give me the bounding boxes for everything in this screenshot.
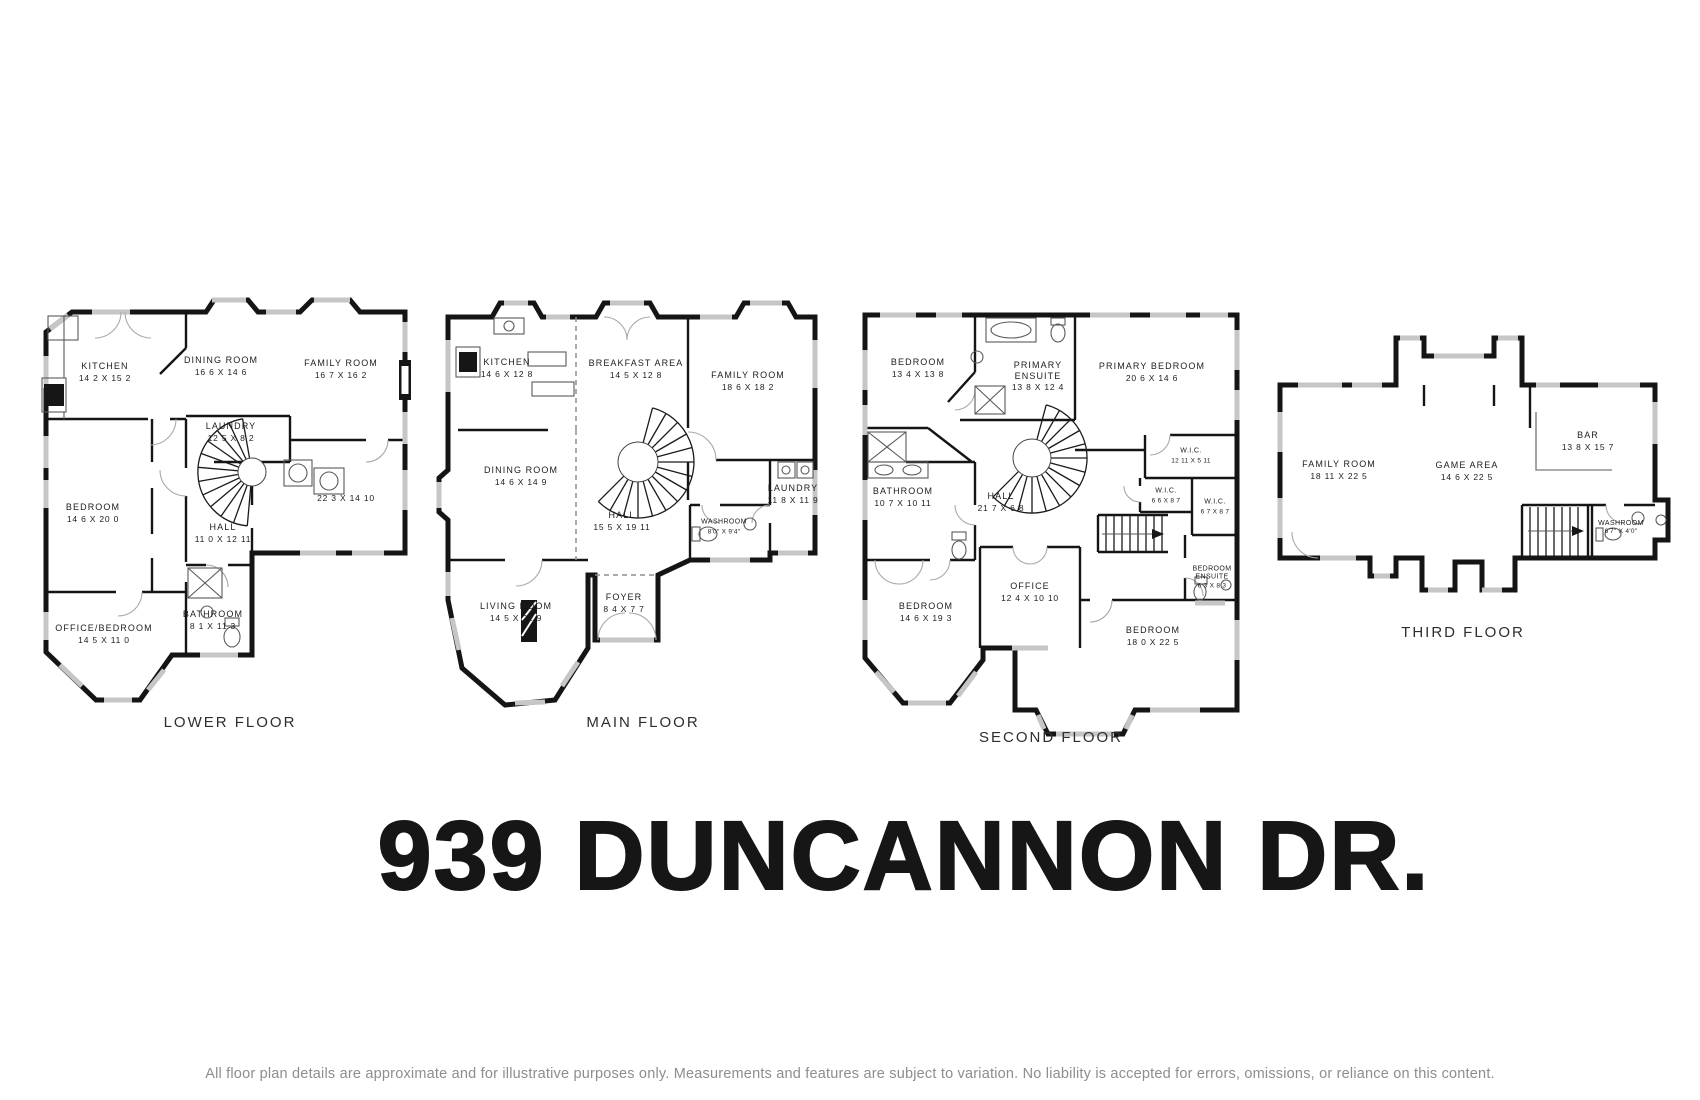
lower-hall-label: HALL11 0 X 12 11 [195,521,252,545]
spiral-staircase-icon [598,408,694,518]
second-bathroom-label: BATHROOM10 7 X 10 11 [873,485,933,509]
sink-icon [971,351,983,363]
third-family-room-label: FAMILY ROOM18 11 X 22 5 [1302,458,1376,482]
dryer-icon [797,462,813,478]
toilet-icon [952,532,966,540]
third-game-area-label: GAME AREA14 6 X 22 5 [1436,459,1499,483]
second-bedroom1-label: BEDROOM13 4 X 13 8 [891,356,945,380]
second-wic1-label: W.I.C.12 11 X 5 11 [1171,447,1211,466]
main-dining-room-label: DINING ROOM14 6 X 14 9 [484,464,558,488]
vanity-counter [868,462,928,478]
lower-kitchen-label: KITCHEN14 2 X 15 2 [79,360,131,384]
floor-caption-third: THIRD FLOOR [1401,624,1525,641]
lower-bedroom-label: BEDROOM14 6 X 20 0 [66,501,120,525]
laundry-fixtures [778,462,813,478]
staircase-icon [1102,515,1164,552]
washer-icon [778,462,795,478]
main-living-room-label: LIVING ROOM14 5 X 21 9 [480,600,552,624]
floor-plan-canvas [0,0,1700,1100]
utility-fixtures [284,460,344,494]
stove-icon [459,352,477,372]
main-hall-label: HALL15 5 X 19 11 [593,509,650,533]
main-kitchen-label: KITCHEN14 6 X 12 8 [481,356,533,380]
address-title: 939 DUNCANNON DR. [378,800,1431,912]
lower-office-bedroom-label: OFFICE/BEDROOM14 5 X 11 0 [55,622,152,646]
second-hall-label: HALL21 7 X 6 8 [978,490,1025,514]
second-primary-ensuite-label: PRIMARY ENSUITE13 8 X 12 4 [1006,360,1070,392]
main-foyer-label: FOYER8 4 X 7 7 [603,591,644,615]
floor-caption-main: MAIN FLOOR [586,714,699,731]
island-counter [528,352,566,366]
stove-icon [44,384,64,406]
lower-family-room-label: FAMILY ROOM16 7 X 16 2 [304,357,378,381]
sink-icon [1656,515,1666,525]
second-primary-bedroom-label: PRIMARY BEDROOM20 6 X 14 6 [1099,360,1205,384]
staircase-icon [1528,507,1584,556]
lower-bathroom-label: BATHROOM8 1 X 11 3 [183,608,243,632]
second-bedroom-ensuite-label: BEDROOM ENSUITE6 3 X 8 3 [1187,566,1237,591]
second-wic3-label: W.I.C.6 7 X 8 7 [1201,498,1230,517]
floor-caption-second: SECOND FLOOR [979,729,1123,746]
disclaimer-text: All floor plan details are approximate a… [205,1066,1495,1082]
main-laundry-label: LAUNDRY11 8 X 11 9 [767,482,818,506]
second-office-label: OFFICE12 4 X 10 10 [1001,580,1059,604]
sink-icon [494,318,524,334]
main-washroom-label: WASHROOM8'0" X 9'4" [701,518,747,537]
third-bar-label: BAR13 8 X 15 7 [1562,429,1614,453]
third-washroom-label: WASHROOM6'7" X 4'0" [1596,520,1646,536]
second-bedroom2-label: BEDROOM14 6 X 19 3 [899,600,953,624]
second-bedroom3-label: BEDROOM18 0 X 22 5 [1126,624,1180,648]
main-breakfast-area-label: BREAKFAST AREA14 5 X 12 8 [589,357,684,381]
lower-laundry-label: LAUNDRY12 5 X 8 2 [206,420,257,444]
floor-caption-lower: LOWER FLOOR [164,714,297,731]
lower-open-area-label: 22 3 X 14 10 [317,493,375,505]
second-wic2-label: W.I.C.6 6 X 8 7 [1152,487,1181,506]
main-family-room-label: FAMILY ROOM18 6 X 18 2 [711,369,785,393]
lower-dining-room-label: DINING ROOM16 6 X 14 6 [184,354,258,378]
fireplace-icon [399,360,411,400]
